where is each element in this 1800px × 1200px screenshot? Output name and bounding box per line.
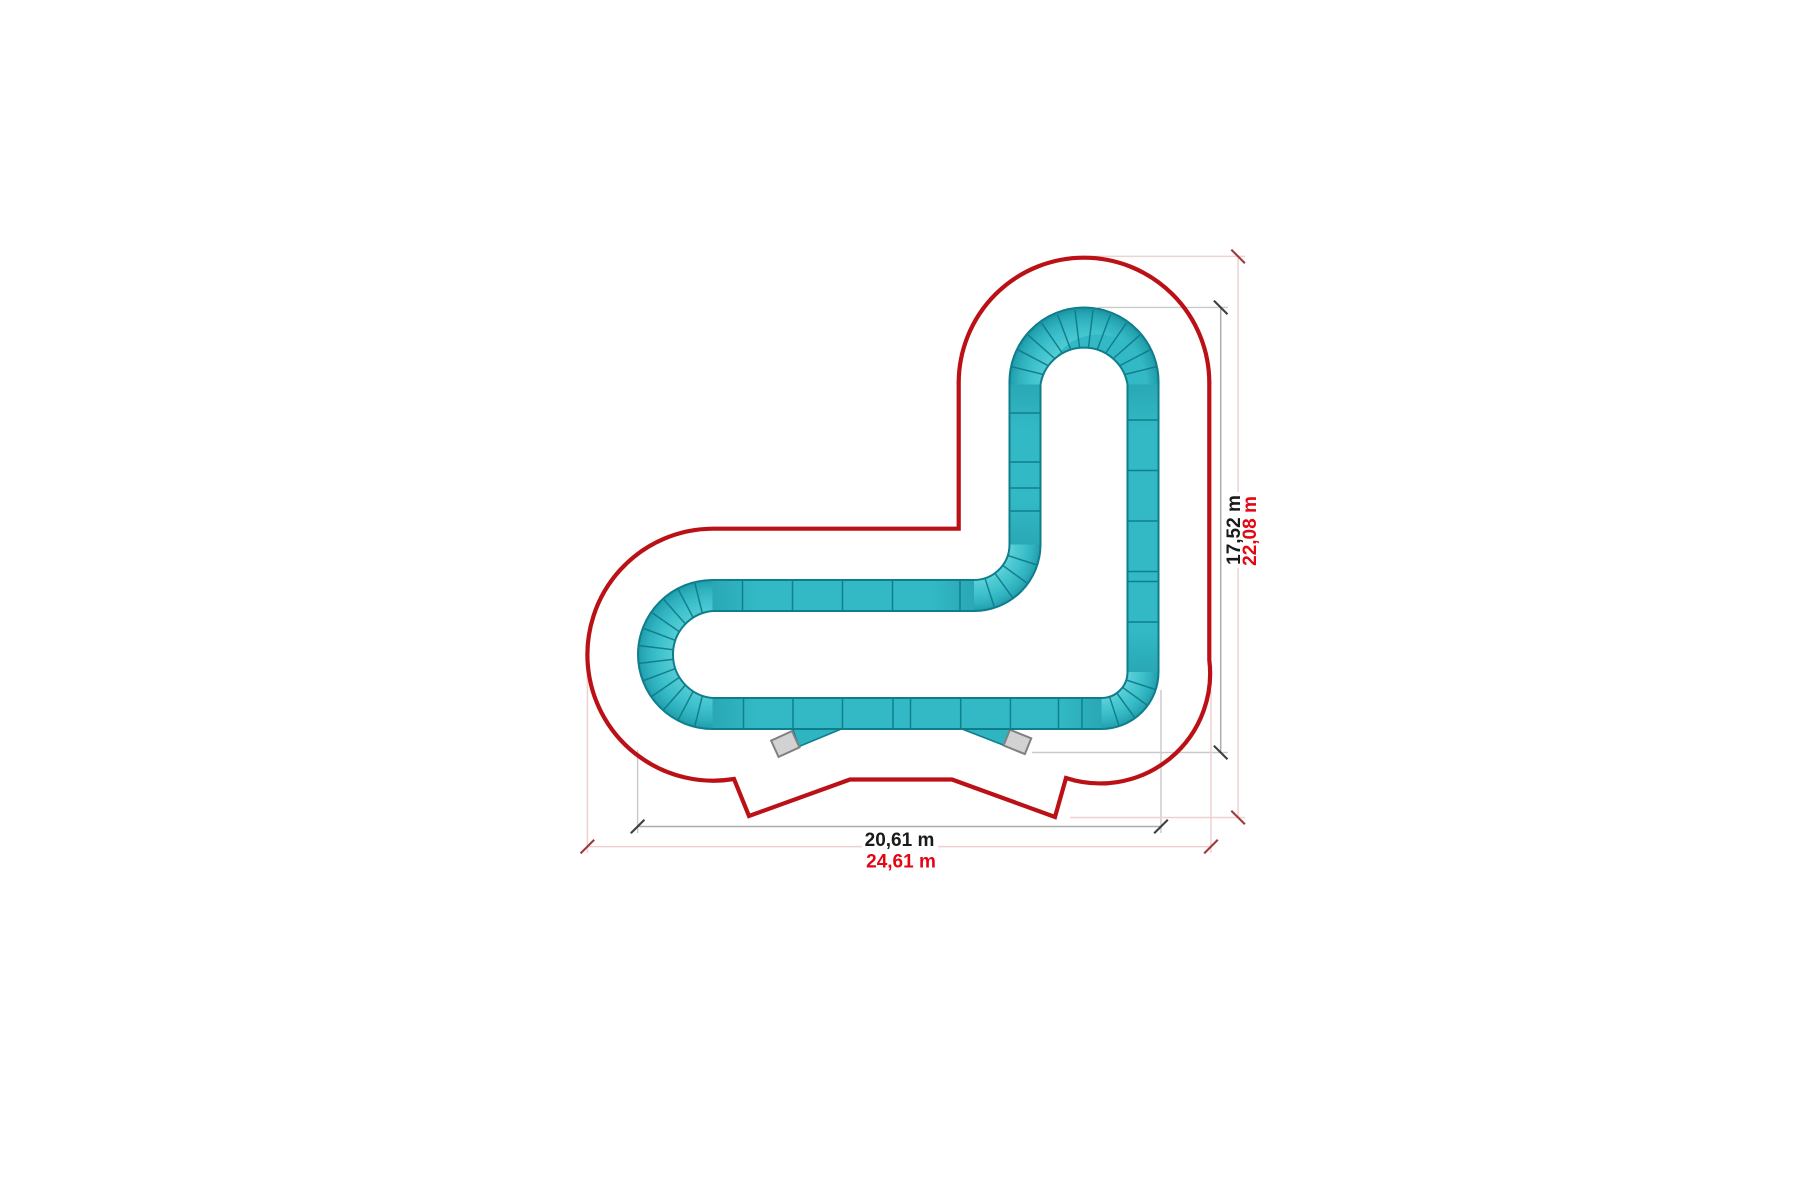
svg-text:24,61 m: 24,61 m: [866, 852, 936, 873]
svg-text:20,61 m: 20,61 m: [865, 830, 935, 851]
svg-text:22,08 m: 22,08 m: [1240, 496, 1261, 566]
